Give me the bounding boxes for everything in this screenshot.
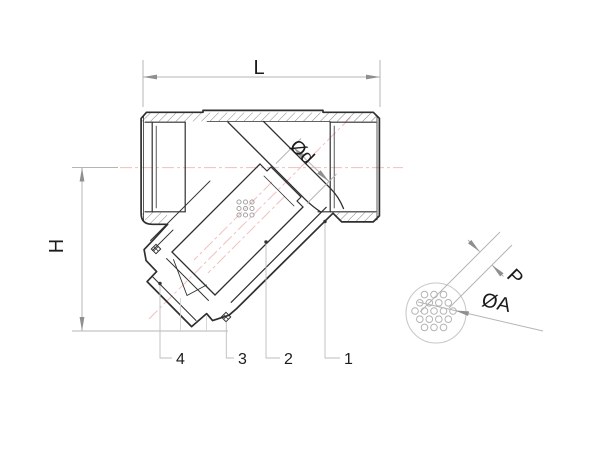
cap-thread-joint-line xyxy=(153,230,174,251)
dim-H-label: H xyxy=(46,239,68,253)
dim-A-label: ØA xyxy=(480,289,514,317)
screen-mouth-step xyxy=(260,164,303,207)
dim-P-arrow-1 xyxy=(468,240,480,252)
detail-view-screen xyxy=(406,232,543,343)
top-wall-hatch xyxy=(141,113,379,122)
leader-dot-2 xyxy=(264,240,267,243)
part-number-4: 4 xyxy=(176,351,185,368)
leader-dot-1 xyxy=(323,220,326,223)
strainer-screen xyxy=(167,164,304,301)
branch-axis-centerline xyxy=(149,116,352,319)
dim-P-label: P xyxy=(502,265,527,290)
part-leaders xyxy=(160,222,340,359)
detail-perforations xyxy=(412,291,457,330)
leader-dot-4 xyxy=(158,282,161,285)
screen-end-inner-line xyxy=(167,259,209,301)
branch-bore-upper-line xyxy=(151,181,211,241)
leader-part-3 xyxy=(226,322,234,358)
drawing-svg: L H Ød 4 3 2 1 xyxy=(0,0,600,455)
dim-d-label: Ød xyxy=(285,136,318,169)
dim-L-label: L xyxy=(253,57,264,79)
leader-part-2 xyxy=(266,242,280,358)
dim-P-arrow-2 xyxy=(492,265,504,277)
gasket-upper xyxy=(151,244,160,253)
part-number-1: 1 xyxy=(344,351,353,368)
part-number-2: 2 xyxy=(284,351,293,368)
y-strainer-technical-drawing: L H Ød 4 3 2 1 xyxy=(0,0,600,455)
part-number-3: 3 xyxy=(238,351,247,368)
dim-d-ext-lower xyxy=(307,174,337,204)
branch-wall-inner-line xyxy=(231,207,326,302)
leader-part-1 xyxy=(325,222,340,359)
